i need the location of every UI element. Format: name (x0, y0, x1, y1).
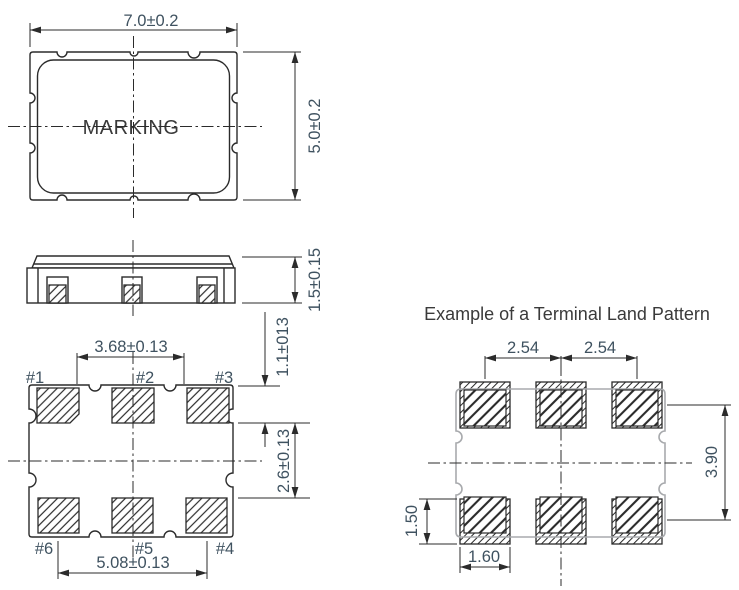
pad-2-label: #2 (136, 369, 154, 387)
package-dimensions-drawing: MARKING 7.0±0.2 5.0±0.2 (0, 0, 739, 590)
dim-body-height-text: 5.0±0.2 (306, 99, 324, 154)
dim-land-width: 1.60 (460, 547, 510, 573)
bottom-view: #1 #2 #3 #6 #5 #4 3.68±0.13 5.08±0.13 (8, 338, 262, 579)
dim-pitch-right-text: 2.54 (584, 339, 616, 357)
dim-pitch-left-text: 2.54 (507, 339, 539, 357)
side-terminal-2 (124, 285, 140, 303)
dim-row-gap-text: 2.6±0.13 (275, 429, 293, 493)
pad-4 (186, 498, 227, 533)
marking-text: MARKING (83, 117, 180, 139)
land-pattern: Example of a Terminal Land Pattern 2.54 … (403, 304, 731, 586)
side-view: 1.5±0.15 (27, 240, 324, 316)
land-pad-inner-1 (464, 390, 506, 426)
dim-land-height: 1.50 (403, 499, 457, 544)
dim-land-width-text: 1.60 (468, 548, 500, 566)
dim-inner-pad-span: 3.68±0.13 (77, 338, 184, 384)
dim-thickness: 1.5±0.15 (242, 248, 324, 312)
dim-outer-pad-span-text: 5.08±0.13 (96, 554, 169, 572)
technical-drawing-svg: MARKING 7.0±0.2 5.0±0.2 (0, 0, 739, 590)
land-pad-inner-3 (616, 390, 658, 426)
dim-thickness-text: 1.5±0.15 (306, 248, 324, 312)
side-terminal-3 (199, 285, 215, 303)
dim-row-pitch-text: 3.90 (703, 446, 721, 478)
land-pad-inner-6 (464, 497, 506, 533)
pad-6-label: #6 (35, 540, 53, 558)
dim-land-height-text: 1.50 (403, 505, 421, 537)
pad-4-label: #4 (216, 540, 234, 558)
pad-1-label: #1 (26, 369, 44, 387)
dim-body-width-text: 7.0±0.2 (124, 12, 179, 30)
top-view: MARKING 7.0±0.2 5.0±0.2 (8, 12, 324, 218)
dim-edge-offset: 1.1±013 (238, 312, 292, 447)
land-pad-inner-4 (616, 497, 658, 533)
land-pattern-title: Example of a Terminal Land Pattern (424, 304, 710, 324)
side-terminal-1 (49, 285, 66, 303)
pad-1 (37, 388, 79, 423)
dim-edge-offset-text: 1.1±013 (274, 317, 292, 377)
pad-3 (187, 388, 229, 423)
dim-inner-pad-span-text: 3.68±0.13 (94, 338, 167, 356)
pad-6 (38, 498, 79, 533)
dim-row-pitch: 3.90 (667, 405, 731, 520)
pad-3-label: #3 (215, 369, 233, 387)
